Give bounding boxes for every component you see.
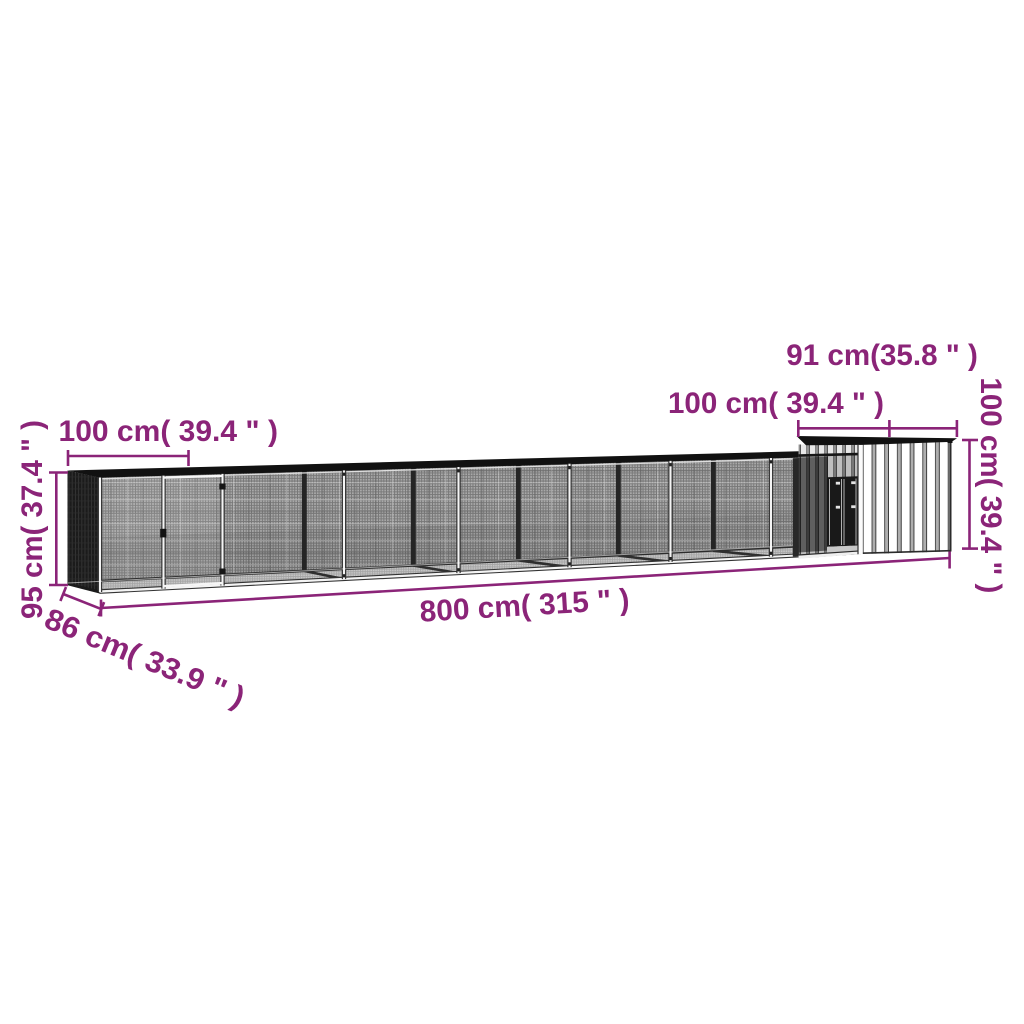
svg-text:100 cm( 39.4 " ): 100 cm( 39.4 " ) xyxy=(668,387,884,420)
svg-text:91 cm(35.8 " ): 91 cm(35.8 " ) xyxy=(786,339,978,372)
svg-text:100 cm( 39.4 " ): 100 cm( 39.4 " ) xyxy=(974,377,1007,593)
svg-text:95 cm( 37.4 " ): 95 cm( 37.4 " ) xyxy=(16,420,49,619)
svg-text:100 cm( 39.4 " ): 100 cm( 39.4 " ) xyxy=(59,415,279,448)
